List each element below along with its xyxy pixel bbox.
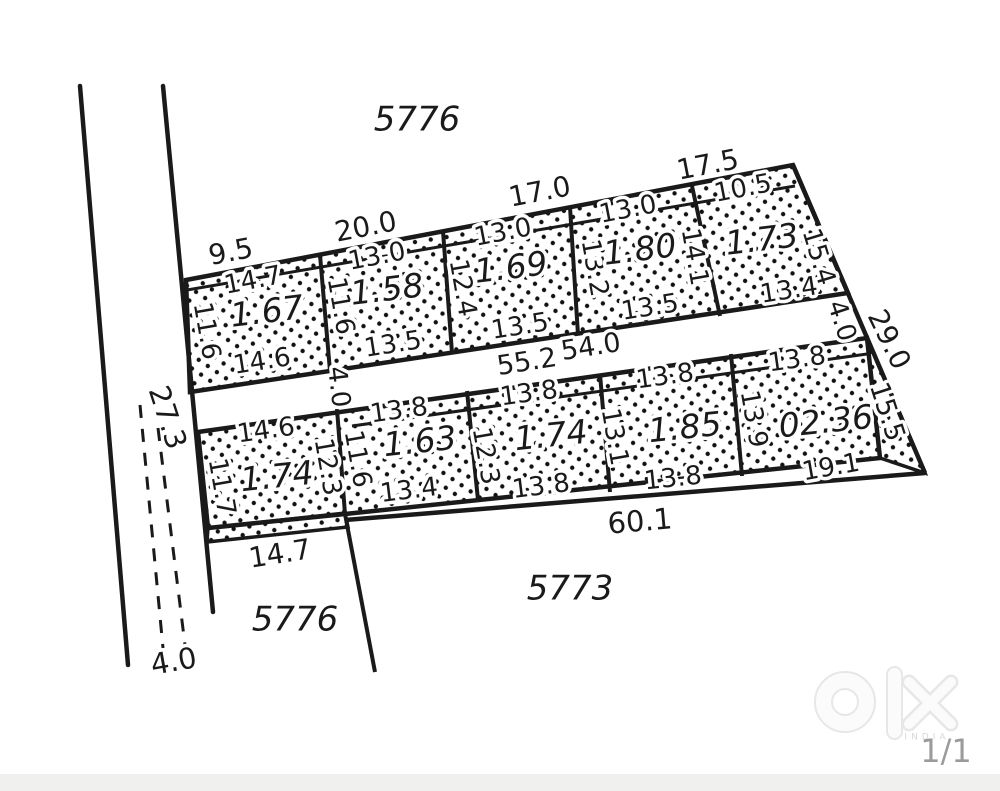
image-viewer-canvas: INDIA 1/1 27.3: [0, 0, 1000, 791]
page-indicator: 1/1: [920, 732, 972, 770]
plot-survey-drawing: INDIA 1/1 27.3: [0, 0, 1000, 791]
parcel-number-bottom-center: 5773: [527, 569, 614, 609]
footer-bar: [0, 774, 1000, 791]
parcel-number-top: 5776: [374, 100, 461, 140]
plotD-area-label: 1.85: [646, 404, 723, 450]
plotD-bottom-dim: 13.8: [643, 461, 704, 497]
plotB-area-label: 1.63: [381, 418, 458, 464]
plotA-area-label: 1.74: [238, 453, 315, 499]
plotC-area-label: 1.74: [512, 412, 589, 458]
boundary-bottom-dim: 60.1: [606, 501, 673, 540]
parcel-number-bottom-left: 5776: [252, 600, 339, 640]
road-left-width: 4.0: [321, 365, 356, 410]
